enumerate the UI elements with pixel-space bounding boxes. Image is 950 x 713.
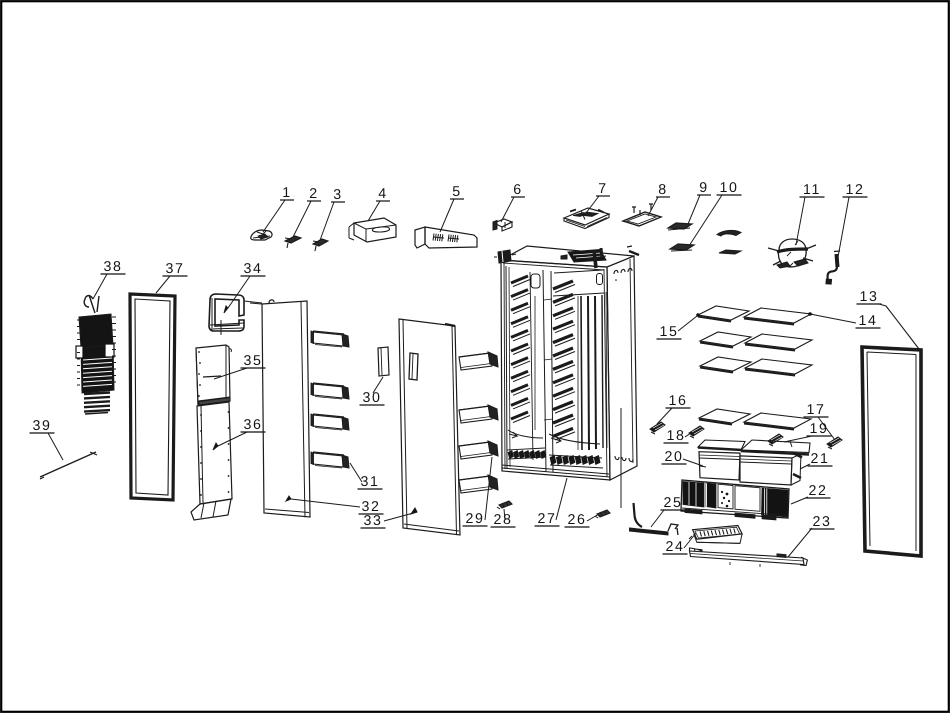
svg-text:3: 3 — [333, 187, 343, 203]
svg-text:11: 11 — [803, 182, 821, 198]
svg-text:29: 29 — [466, 511, 485, 527]
svg-text:13: 13 — [860, 289, 879, 305]
svg-text:37: 37 — [166, 261, 185, 277]
svg-text:19: 19 — [810, 421, 829, 437]
svg-text:18: 18 — [667, 428, 686, 444]
svg-text:35: 35 — [244, 353, 263, 369]
svg-text:23: 23 — [813, 514, 832, 530]
svg-text:17: 17 — [807, 402, 826, 418]
svg-text:26: 26 — [568, 512, 587, 528]
svg-text:38: 38 — [104, 259, 123, 275]
svg-text:31: 31 — [361, 474, 380, 490]
svg-text:16: 16 — [669, 393, 688, 409]
svg-text:14: 14 — [859, 313, 878, 329]
svg-text:7: 7 — [598, 181, 608, 197]
svg-text:1: 1 — [282, 185, 292, 201]
svg-text:21: 21 — [811, 451, 830, 467]
svg-text:25: 25 — [664, 495, 683, 511]
svg-text:12: 12 — [846, 182, 865, 198]
svg-text:39: 39 — [33, 418, 52, 434]
svg-text:36: 36 — [244, 417, 263, 433]
svg-text:20: 20 — [665, 449, 684, 465]
svg-text:22: 22 — [809, 483, 828, 499]
svg-text:28: 28 — [494, 512, 513, 528]
svg-text:27: 27 — [538, 511, 557, 527]
svg-text:30: 30 — [363, 390, 382, 406]
svg-text:33: 33 — [364, 513, 383, 529]
svg-text:2: 2 — [309, 186, 319, 202]
svg-text:9: 9 — [699, 180, 709, 196]
svg-text:10: 10 — [720, 180, 739, 196]
svg-text:15: 15 — [660, 324, 679, 340]
svg-text:5: 5 — [452, 184, 462, 200]
svg-text:34: 34 — [244, 261, 263, 277]
svg-text:24: 24 — [666, 539, 685, 555]
svg-text:8: 8 — [658, 182, 668, 198]
svg-text:4: 4 — [378, 186, 388, 202]
svg-text:6: 6 — [513, 182, 523, 198]
